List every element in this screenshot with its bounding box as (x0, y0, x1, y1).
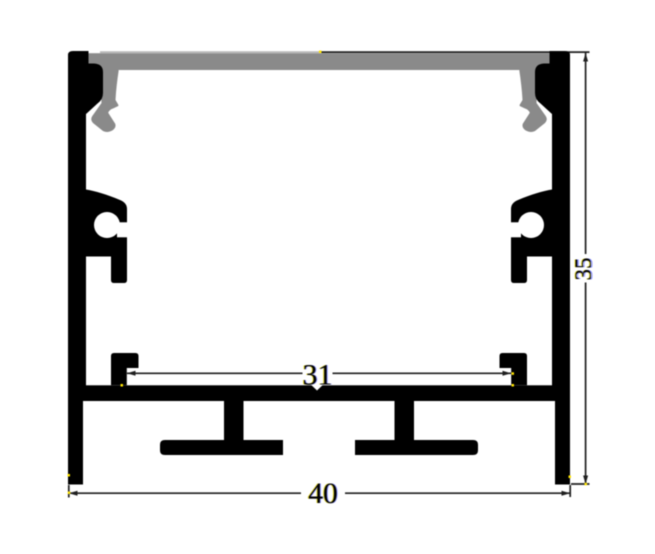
svg-text:31: 31 (303, 358, 333, 391)
svg-text:35: 35 (571, 258, 596, 281)
svg-text:40: 40 (308, 478, 338, 510)
